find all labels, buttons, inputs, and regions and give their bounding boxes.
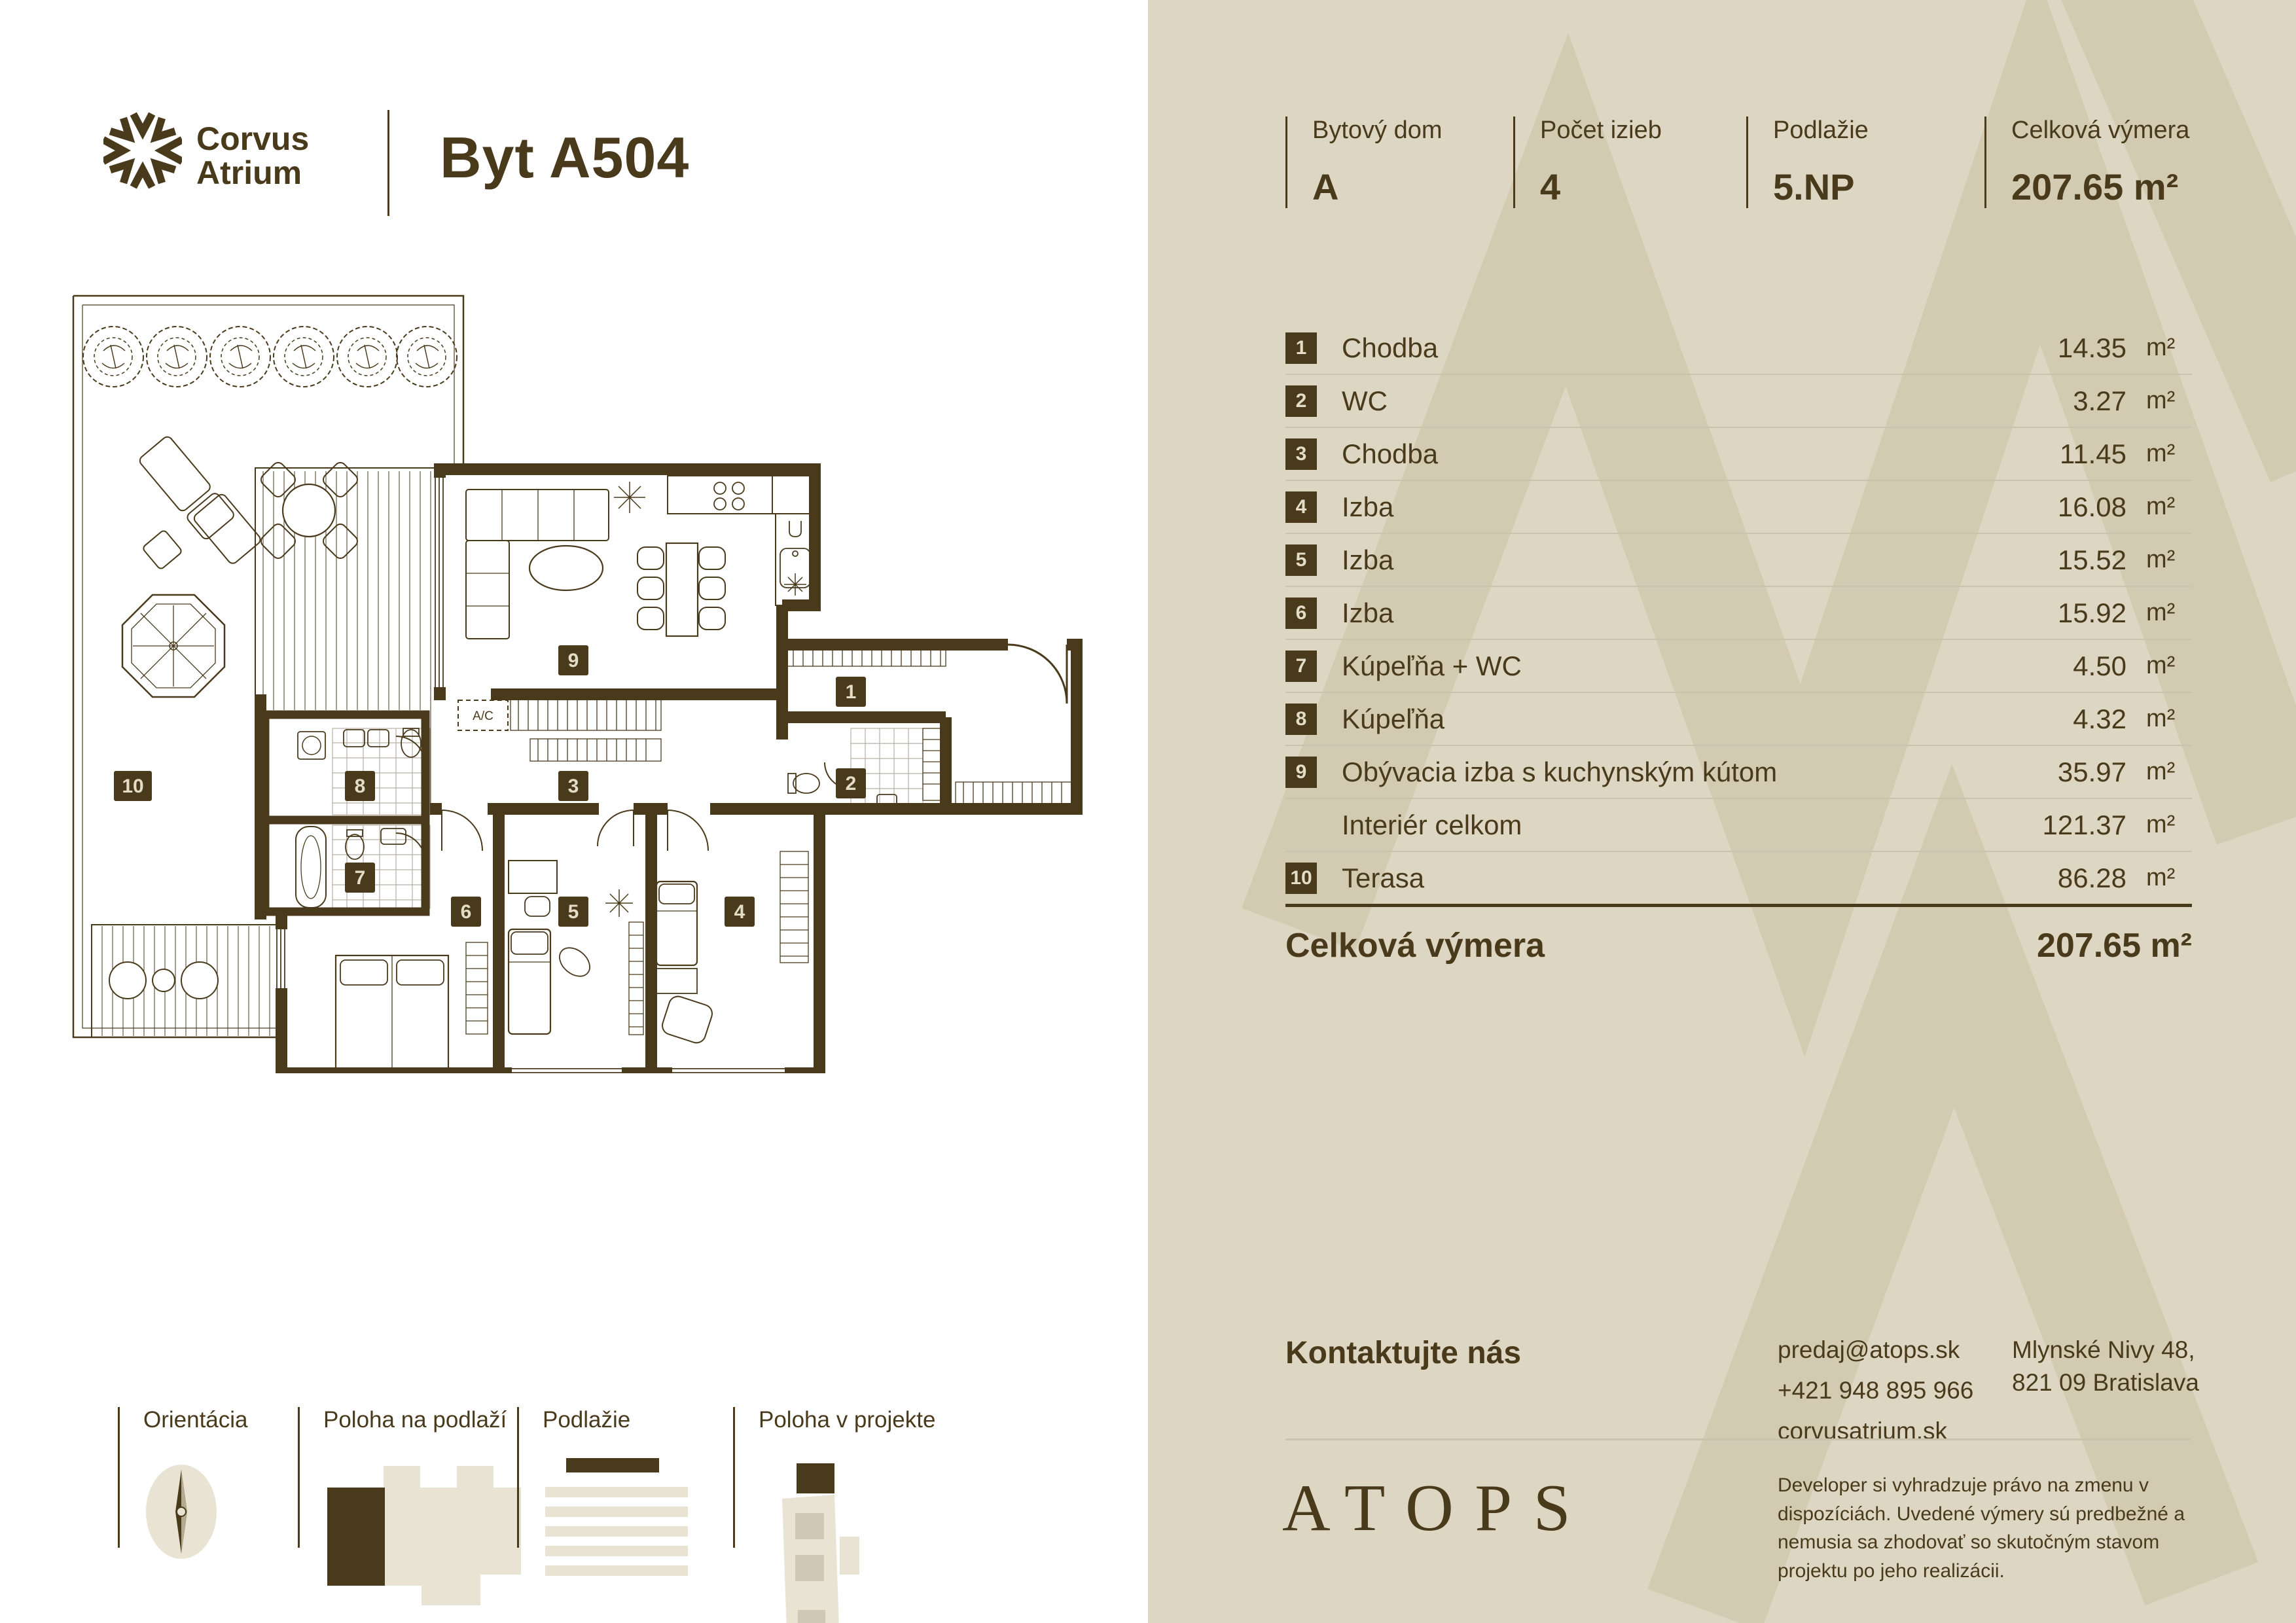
row-unit: m² [2146, 652, 2192, 680]
row-unit: m² [2146, 334, 2192, 362]
row-name: Izba [1342, 544, 2009, 576]
row-badge: 8 [1285, 704, 1317, 735]
row-area: 3.27 [2009, 385, 2126, 417]
stat-rooms: Počet izieb 4 [1513, 116, 1740, 208]
badge-wc: 2 [846, 773, 857, 794]
page-title: Byt A504 [440, 124, 689, 191]
row-area: 4.32 [2009, 704, 2126, 735]
contact-links: predaj@atops.sk +421 948 895 966 corvusa… [1778, 1334, 1973, 1455]
contact-address: Mlynské Nivy 48, 821 09 Bratislava [2012, 1334, 2199, 1399]
legend-project-position-label: Poloha v projekte [759, 1407, 1033, 1433]
total-label: Celková výmera [1285, 926, 2037, 965]
row-badge: 10 [1285, 863, 1317, 894]
row-area: 15.92 [2009, 597, 2126, 629]
row-name: Terasa [1342, 863, 2009, 894]
row-name: Izba [1342, 597, 2009, 629]
stat-total-area-value: 207.65 m² [2011, 166, 2296, 208]
row-unit: m² [2146, 440, 2192, 468]
stat-building: Bytový dom A [1285, 116, 1509, 208]
row-badge: 3 [1285, 438, 1317, 470]
contact-heading: Kontaktujte nás [1285, 1335, 1521, 1371]
row-name: Kúpeľňa [1342, 704, 2009, 735]
stat-total-area: Celková výmera 207.65 m² [1984, 116, 2296, 208]
badge-terasa: 10 [122, 776, 143, 797]
brand-divider [387, 110, 389, 216]
row-unit: m² [2146, 387, 2192, 415]
table-row: 7 Kúpeľňa + WC 4.50 m² [1285, 640, 2192, 693]
terrace-trees [83, 327, 457, 387]
row-badge: 7 [1285, 651, 1317, 682]
contact-divider [1285, 1438, 2191, 1440]
row-unit: m² [2146, 864, 2192, 892]
legend-storey: Podlažie [517, 1407, 732, 1548]
row-unit: m² [2146, 546, 2192, 574]
row-badge: 4 [1285, 491, 1317, 523]
row-area: 15.52 [2009, 544, 2126, 576]
table-row: 4 Izba 16.08 m² [1285, 481, 2192, 534]
brand-name-line2: Atrium [196, 156, 309, 190]
row-area: 86.28 [2009, 863, 2126, 894]
floor-plan: A/C 10 9 1 2 3 8 7 6 5 4 [65, 281, 1086, 1073]
badge-bath8: 8 [355, 776, 366, 797]
table-row: 10 Terasa 86.28 m² [1285, 852, 2192, 904]
stat-storey-label: Podlažie [1773, 116, 1976, 145]
row-badge: 1 [1285, 332, 1317, 364]
contact-address-line1: Mlynské Nivy 48, [2012, 1334, 2199, 1366]
total-value: 207.65 m² [2037, 926, 2192, 965]
badge-hall: 1 [846, 681, 857, 703]
stat-storey: Podlažie 5.NP [1746, 116, 1976, 208]
row-badge: 9 [1285, 757, 1317, 788]
stat-rooms-label: Počet izieb [1540, 116, 1740, 145]
row-badge [1285, 810, 1317, 841]
row-badge: 2 [1285, 385, 1317, 417]
row-badge: 5 [1285, 544, 1317, 576]
apartment-floor [260, 469, 1077, 1073]
stat-total-area-label: Celková výmera [2011, 116, 2296, 145]
jacuzzi [122, 595, 224, 697]
left-panel: Corvus Atrium Byt A504 [0, 0, 1148, 1623]
badge-living: 9 [568, 650, 579, 671]
contact-email[interactable]: predaj@atops.sk [1778, 1334, 1973, 1366]
row-unit: m² [2146, 705, 2192, 733]
stat-building-label: Bytový dom [1312, 116, 1509, 145]
storey-icon [543, 1458, 693, 1579]
legend-storey-label: Podlažie [543, 1407, 732, 1433]
table-row: 5 Izba 15.52 m² [1285, 534, 2192, 587]
row-unit: m² [2146, 758, 2192, 786]
stat-building-value: A [1312, 166, 1509, 208]
compass-icon [143, 1458, 222, 1563]
badge-corridor: 3 [568, 776, 579, 797]
contact-website[interactable]: corvusatrium.sk [1778, 1415, 1973, 1448]
legend-orientation-label: Orientácia [143, 1407, 300, 1433]
row-area: 16.08 [2009, 491, 2126, 523]
row-badge: 6 [1285, 597, 1317, 629]
lounge-chairs [138, 435, 262, 570]
floor-position-icon [323, 1458, 526, 1612]
table-row-subtotal: Interiér celkom 121.37 m² [1285, 799, 2192, 852]
terrace-lower-deck [92, 925, 281, 1037]
table-row: 3 Chodba 11.45 m² [1285, 428, 2192, 481]
stat-rooms-value: 4 [1540, 166, 1740, 208]
row-name: WC [1342, 385, 2009, 417]
table-row: 6 Izba 15.92 m² [1285, 587, 2192, 640]
row-area: 35.97 [2009, 757, 2126, 788]
info-panel: Bytový dom A Počet izieb 4 Podlažie 5.NP… [1148, 0, 2296, 1623]
row-name: Chodba [1342, 332, 2009, 364]
contact-phone[interactable]: +421 948 895 966 [1778, 1374, 1973, 1407]
legend-project-position: Poloha v projekte [733, 1407, 1033, 1548]
corvus-logo-icon [103, 111, 182, 190]
table-row: 2 WC 3.27 m² [1285, 375, 2192, 428]
badge-room4: 4 [734, 901, 745, 923]
row-name: Obývacia izba s kuchynským kútom [1342, 757, 2009, 788]
row-name: Izba [1342, 491, 2009, 523]
developer-logo: ATOPS [1282, 1470, 1592, 1546]
row-unit: m² [2146, 811, 2192, 839]
brand-name-line1: Corvus [196, 122, 309, 156]
badge-room5: 5 [568, 901, 579, 923]
row-name: Interiér celkom [1342, 810, 2009, 841]
project-position-icon [759, 1458, 889, 1623]
legend-orientation: Orientácia [118, 1407, 300, 1548]
total-row: Celková výmera 207.65 m² [1285, 907, 2192, 984]
brochure-page: Corvus Atrium Byt A504 [0, 0, 2296, 1623]
brand-name: Corvus Atrium [196, 122, 309, 190]
row-name: Chodba [1342, 438, 2009, 470]
row-area: 121.37 [2009, 810, 2126, 841]
row-unit: m² [2146, 599, 2192, 627]
table-row: 8 Kúpeľňa 4.32 m² [1285, 693, 2192, 746]
row-area: 11.45 [2009, 438, 2126, 470]
legend-floor-position-label: Poloha na podlaží [323, 1407, 520, 1433]
row-area: 4.50 [2009, 651, 2126, 682]
row-name: Kúpeľňa + WC [1342, 651, 2009, 682]
badge-room6: 6 [461, 901, 472, 923]
table-row: 9 Obývacia izba s kuchynským kútom 35.97… [1285, 746, 2192, 799]
stat-storey-value: 5.NP [1773, 166, 1976, 208]
disclaimer-text: Developer si vyhradzuje právo na zmenu v… [1778, 1471, 2210, 1585]
row-area: 14.35 [2009, 332, 2126, 364]
legend-floor-position: Poloha na podlaží [298, 1407, 520, 1548]
contact-address-line2: 821 09 Bratislava [2012, 1366, 2199, 1399]
badge-bath7: 7 [355, 867, 366, 889]
row-unit: m² [2146, 493, 2192, 521]
ac-label: A/C [473, 709, 493, 723]
table-row: 1 Chodba 14.35 m² [1285, 322, 2192, 375]
rooms-table: 1 Chodba 14.35 m² 2 WC 3.27 m² 3 Chodba … [1285, 322, 2192, 984]
